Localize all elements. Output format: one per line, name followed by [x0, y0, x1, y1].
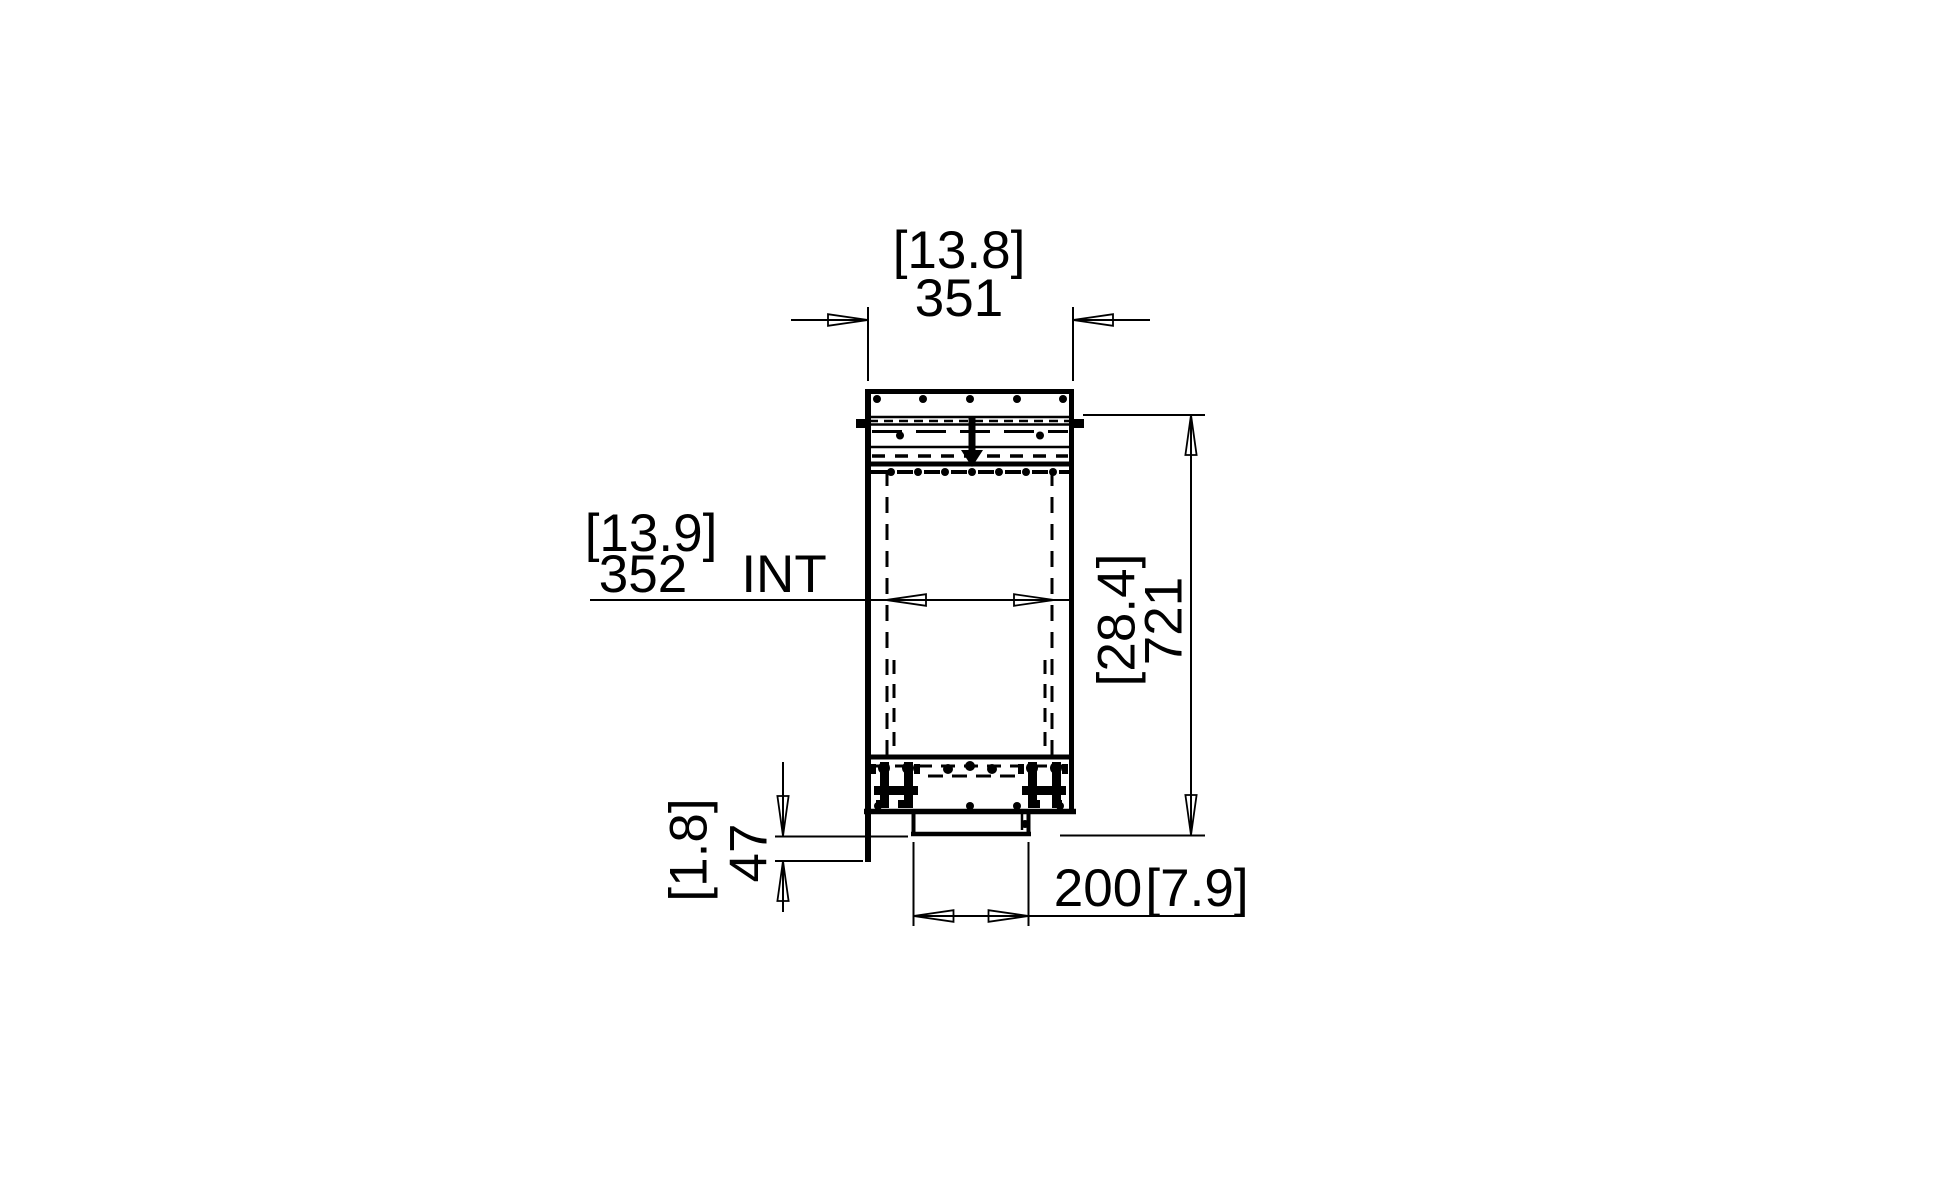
tray-bolt-cluster-left	[870, 762, 920, 808]
top-mounting-assembly	[856, 395, 1084, 476]
dim-duct-width: 200 [7.9]	[914, 842, 1249, 926]
dim-overall-height: [28.4] 721	[1060, 415, 1205, 836]
tray-bolt-cluster-right	[1018, 762, 1068, 808]
dim-overall-height-mm: 721	[1135, 577, 1194, 665]
dim-internal-width: [13.9] 352 INT	[585, 504, 1071, 606]
dim-base-drop-mm: 47	[720, 824, 779, 883]
dim-duct-width-mm: 200	[1054, 859, 1142, 918]
dim-internal-width-suffix: INT	[741, 545, 826, 604]
interior-dashed-lines	[887, 470, 1052, 756]
bottom-duct	[911, 812, 1031, 834]
flange-screw-dots	[873, 395, 1067, 403]
technical-drawing-page: [13.8] 351 [13.9] 352 INT [28.4] 721 [1.…	[0, 0, 1946, 1203]
dim-top-width: [13.8] 351	[791, 221, 1150, 381]
tray-clip-bumps	[943, 761, 997, 774]
dim-internal-width-mm: 352	[599, 545, 687, 604]
dim-base-drop-inches: [1.8]	[660, 798, 719, 901]
burner-tray	[864, 757, 1076, 812]
technical-drawing-canvas: [13.8] 351 [13.9] 352 INT [28.4] 721 [1.…	[0, 0, 1946, 1203]
dim-top-width-mm: 351	[915, 269, 1003, 328]
dim-duct-width-inches: [7.9]	[1145, 859, 1248, 918]
